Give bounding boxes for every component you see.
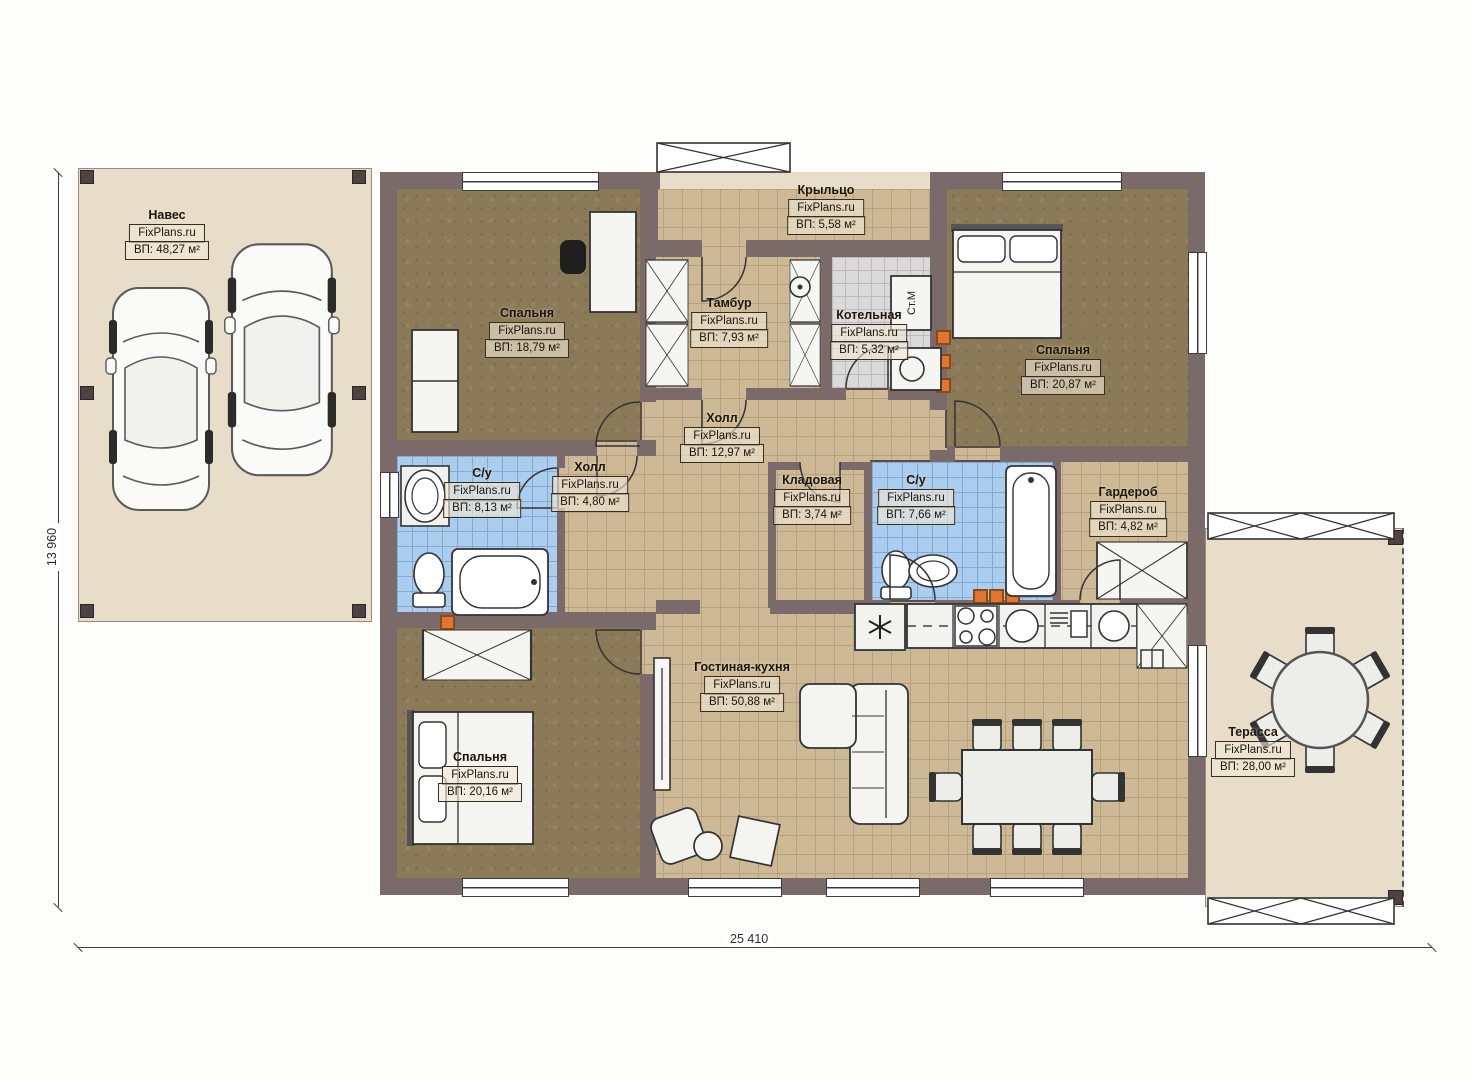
room-label-carport: Навес FixPlans.ru ВП: 48,27 м² <box>125 208 209 260</box>
watermark: FixPlans.ru <box>788 199 864 218</box>
room-label-terrace: Терасса FixPlans.ru ВП: 28,00 м² <box>1211 725 1295 777</box>
window <box>380 472 399 518</box>
watermark: FixPlans.ru <box>1025 359 1101 378</box>
room-label-living-kitchen: Гостиная-кухня FixPlans.ru ВП: 50,88 м² <box>694 660 790 712</box>
room-area: ВП: 7,66 м² <box>877 506 955 525</box>
post <box>80 386 94 400</box>
watermark: FixPlans.ru <box>489 322 565 341</box>
watermark: FixPlans.ru <box>129 224 205 243</box>
wall <box>637 440 656 456</box>
terrace-door <box>1188 645 1207 757</box>
marker <box>989 589 1004 604</box>
wall <box>397 440 597 456</box>
wall <box>640 674 656 878</box>
room-area: ВП: 4,80 м² <box>551 493 629 512</box>
wall <box>656 388 702 400</box>
post <box>80 604 94 618</box>
wall <box>1053 462 1061 600</box>
wall <box>640 612 656 630</box>
room-area: ВП: 18,79 м² <box>485 339 569 358</box>
wall <box>640 189 656 402</box>
window <box>1002 172 1122 191</box>
wall <box>746 240 947 257</box>
post <box>80 170 94 184</box>
room-label-boiler: Котельная FixPlans.ru ВП: 5,32 м² <box>830 308 908 360</box>
marker <box>936 354 951 369</box>
dimension-width: 25 410 <box>725 932 773 946</box>
room-label-bedroom-tl: Спальня FixPlans.ru ВП: 18,79 м² <box>485 306 569 358</box>
room-area: ВП: 4,82 м² <box>1089 518 1167 537</box>
room-label-wardrobe: Гардероб FixPlans.ru ВП: 4,82 м² <box>1089 485 1167 537</box>
wall <box>864 462 872 608</box>
marker <box>440 615 455 630</box>
terrace-area <box>1205 528 1404 907</box>
room-area: ВП: 12,97 м² <box>680 444 764 463</box>
watermark: FixPlans.ru <box>1215 741 1291 760</box>
watermark: FixPlans.ru <box>691 312 767 331</box>
wall <box>930 189 947 410</box>
wall <box>776 462 800 470</box>
post <box>352 170 366 184</box>
room-label-storage: Кладовая FixPlans.ru ВП: 3,74 м² <box>773 473 851 525</box>
watermark: FixPlans.ru <box>684 427 760 446</box>
marker <box>936 378 951 393</box>
carport-area <box>78 168 372 622</box>
bedroom-tr-floor <box>947 189 1188 446</box>
room-area: ВП: 8,13 м² <box>443 499 521 518</box>
post <box>1388 530 1403 545</box>
wall <box>770 600 890 614</box>
watermark: FixPlans.ru <box>552 476 628 495</box>
wall <box>380 172 397 895</box>
dimension-line-bottom <box>78 947 1432 948</box>
watermark: FixPlans.ru <box>831 324 907 343</box>
room-label-bedroom-bl: Спальня FixPlans.ru ВП: 20,16 м² <box>438 750 522 802</box>
room-area: ВП: 48,27 м² <box>125 241 209 260</box>
room-label-hall-small: Холл FixPlans.ru ВП: 4,80 м² <box>551 460 629 512</box>
room-label-bedroom-tr: Спальня FixPlans.ru ВП: 20,87 м² <box>1021 343 1105 395</box>
marker <box>973 589 988 604</box>
post <box>352 604 366 618</box>
room-label-porch: Крыльцо FixPlans.ru ВП: 5,58 м² <box>787 183 865 235</box>
floor-plan: Ст.М <box>0 0 1473 1080</box>
wall <box>947 446 955 462</box>
marker <box>1005 589 1020 604</box>
window <box>462 878 569 897</box>
room-area: ВП: 28,00 м² <box>1211 758 1295 777</box>
room-area: ВП: 50,88 м² <box>700 693 784 712</box>
wall <box>1000 446 1188 462</box>
wall <box>1120 600 1188 614</box>
post <box>1388 890 1403 905</box>
wall <box>840 462 864 470</box>
wall <box>557 508 565 612</box>
window <box>688 878 782 897</box>
room-area: ВП: 20,87 м² <box>1021 376 1105 395</box>
room-area: ВП: 5,32 м² <box>830 341 908 360</box>
marker <box>936 330 951 345</box>
post <box>352 386 366 400</box>
room-label-hall: Холл FixPlans.ru ВП: 12,97 м² <box>680 411 764 463</box>
window <box>826 878 920 897</box>
wall <box>746 388 846 400</box>
watermark: FixPlans.ru <box>1090 501 1166 520</box>
window <box>462 172 599 191</box>
room-area: ВП: 7,93 м² <box>690 329 768 348</box>
room-label-bathroom-right: С/у FixPlans.ru ВП: 7,66 м² <box>877 473 955 525</box>
wall <box>656 600 700 614</box>
room-area: ВП: 20,16 м² <box>438 783 522 802</box>
entrance-steps-icon <box>657 143 790 172</box>
watermark: FixPlans.ru <box>442 766 518 785</box>
wall <box>930 450 947 462</box>
watermark: FixPlans.ru <box>444 482 520 501</box>
room-label-bathroom-left: С/у FixPlans.ru ВП: 8,13 м² <box>443 466 521 518</box>
window <box>990 878 1084 897</box>
watermark: FixPlans.ru <box>774 489 850 508</box>
wall <box>380 612 656 628</box>
room-area: ВП: 5,58 м² <box>787 216 865 235</box>
watermark: FixPlans.ru <box>704 676 780 695</box>
room-label-tambour: Тамбур FixPlans.ru ВП: 7,93 м² <box>690 296 768 348</box>
window <box>1188 252 1207 354</box>
dimension-height: 13 960 <box>45 523 59 571</box>
watermark: FixPlans.ru <box>878 489 954 508</box>
room-area: ВП: 3,74 м² <box>773 506 851 525</box>
